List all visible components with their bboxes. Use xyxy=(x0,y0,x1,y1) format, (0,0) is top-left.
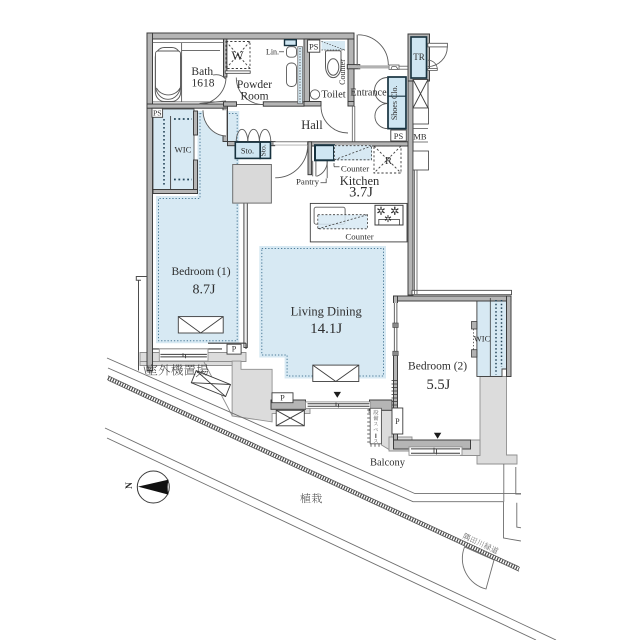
svg-text:P: P xyxy=(280,394,285,403)
svg-text:Bedroom (1): Bedroom (1) xyxy=(171,266,230,278)
svg-text:Bedroom (2): Bedroom (2) xyxy=(408,360,467,372)
svg-text:Counter: Counter xyxy=(341,164,369,174)
svg-text:WIC: WIC xyxy=(474,334,491,344)
svg-text:Room: Room xyxy=(240,91,268,103)
svg-text:Lin.: Lin. xyxy=(266,48,279,57)
svg-text:W: W xyxy=(231,48,244,63)
svg-text:1618: 1618 xyxy=(192,78,215,90)
svg-text:P: P xyxy=(232,345,237,354)
svg-text:PS: PS xyxy=(394,131,404,141)
svg-text:Counter: Counter xyxy=(338,59,347,85)
svg-text:PS: PS xyxy=(153,109,162,118)
svg-text:PS: PS xyxy=(309,42,319,52)
svg-text:5.5J: 5.5J xyxy=(427,377,451,393)
svg-text:8.7J: 8.7J xyxy=(193,283,217,298)
svg-text:Bath: Bath xyxy=(191,66,213,78)
svg-text:WIC: WIC xyxy=(174,145,191,155)
svg-text:TR: TR xyxy=(413,52,425,62)
svg-text:Shoes Clo.: Shoes Clo. xyxy=(390,85,399,120)
svg-text:N: N xyxy=(125,482,135,489)
svg-text:3.7J: 3.7J xyxy=(349,185,373,201)
svg-text:MB: MB xyxy=(413,132,427,142)
svg-text:P: P xyxy=(395,417,400,426)
svg-text:Entrance: Entrance xyxy=(350,88,387,99)
svg-text:Sto.: Sto. xyxy=(259,144,268,156)
svg-text:Toilet: Toilet xyxy=(321,89,345,100)
svg-text:Counter: Counter xyxy=(345,231,373,241)
svg-text:Sto.: Sto. xyxy=(241,147,254,156)
svg-text:Hall: Hall xyxy=(301,118,323,132)
svg-text:Balcony: Balcony xyxy=(370,458,406,469)
svg-text:Powder: Powder xyxy=(237,79,272,91)
svg-text:14.1J: 14.1J xyxy=(310,321,342,337)
svg-text:Pantry: Pantry xyxy=(296,177,320,187)
svg-text:Living Dining: Living Dining xyxy=(291,305,363,319)
svg-text:R: R xyxy=(385,156,392,167)
